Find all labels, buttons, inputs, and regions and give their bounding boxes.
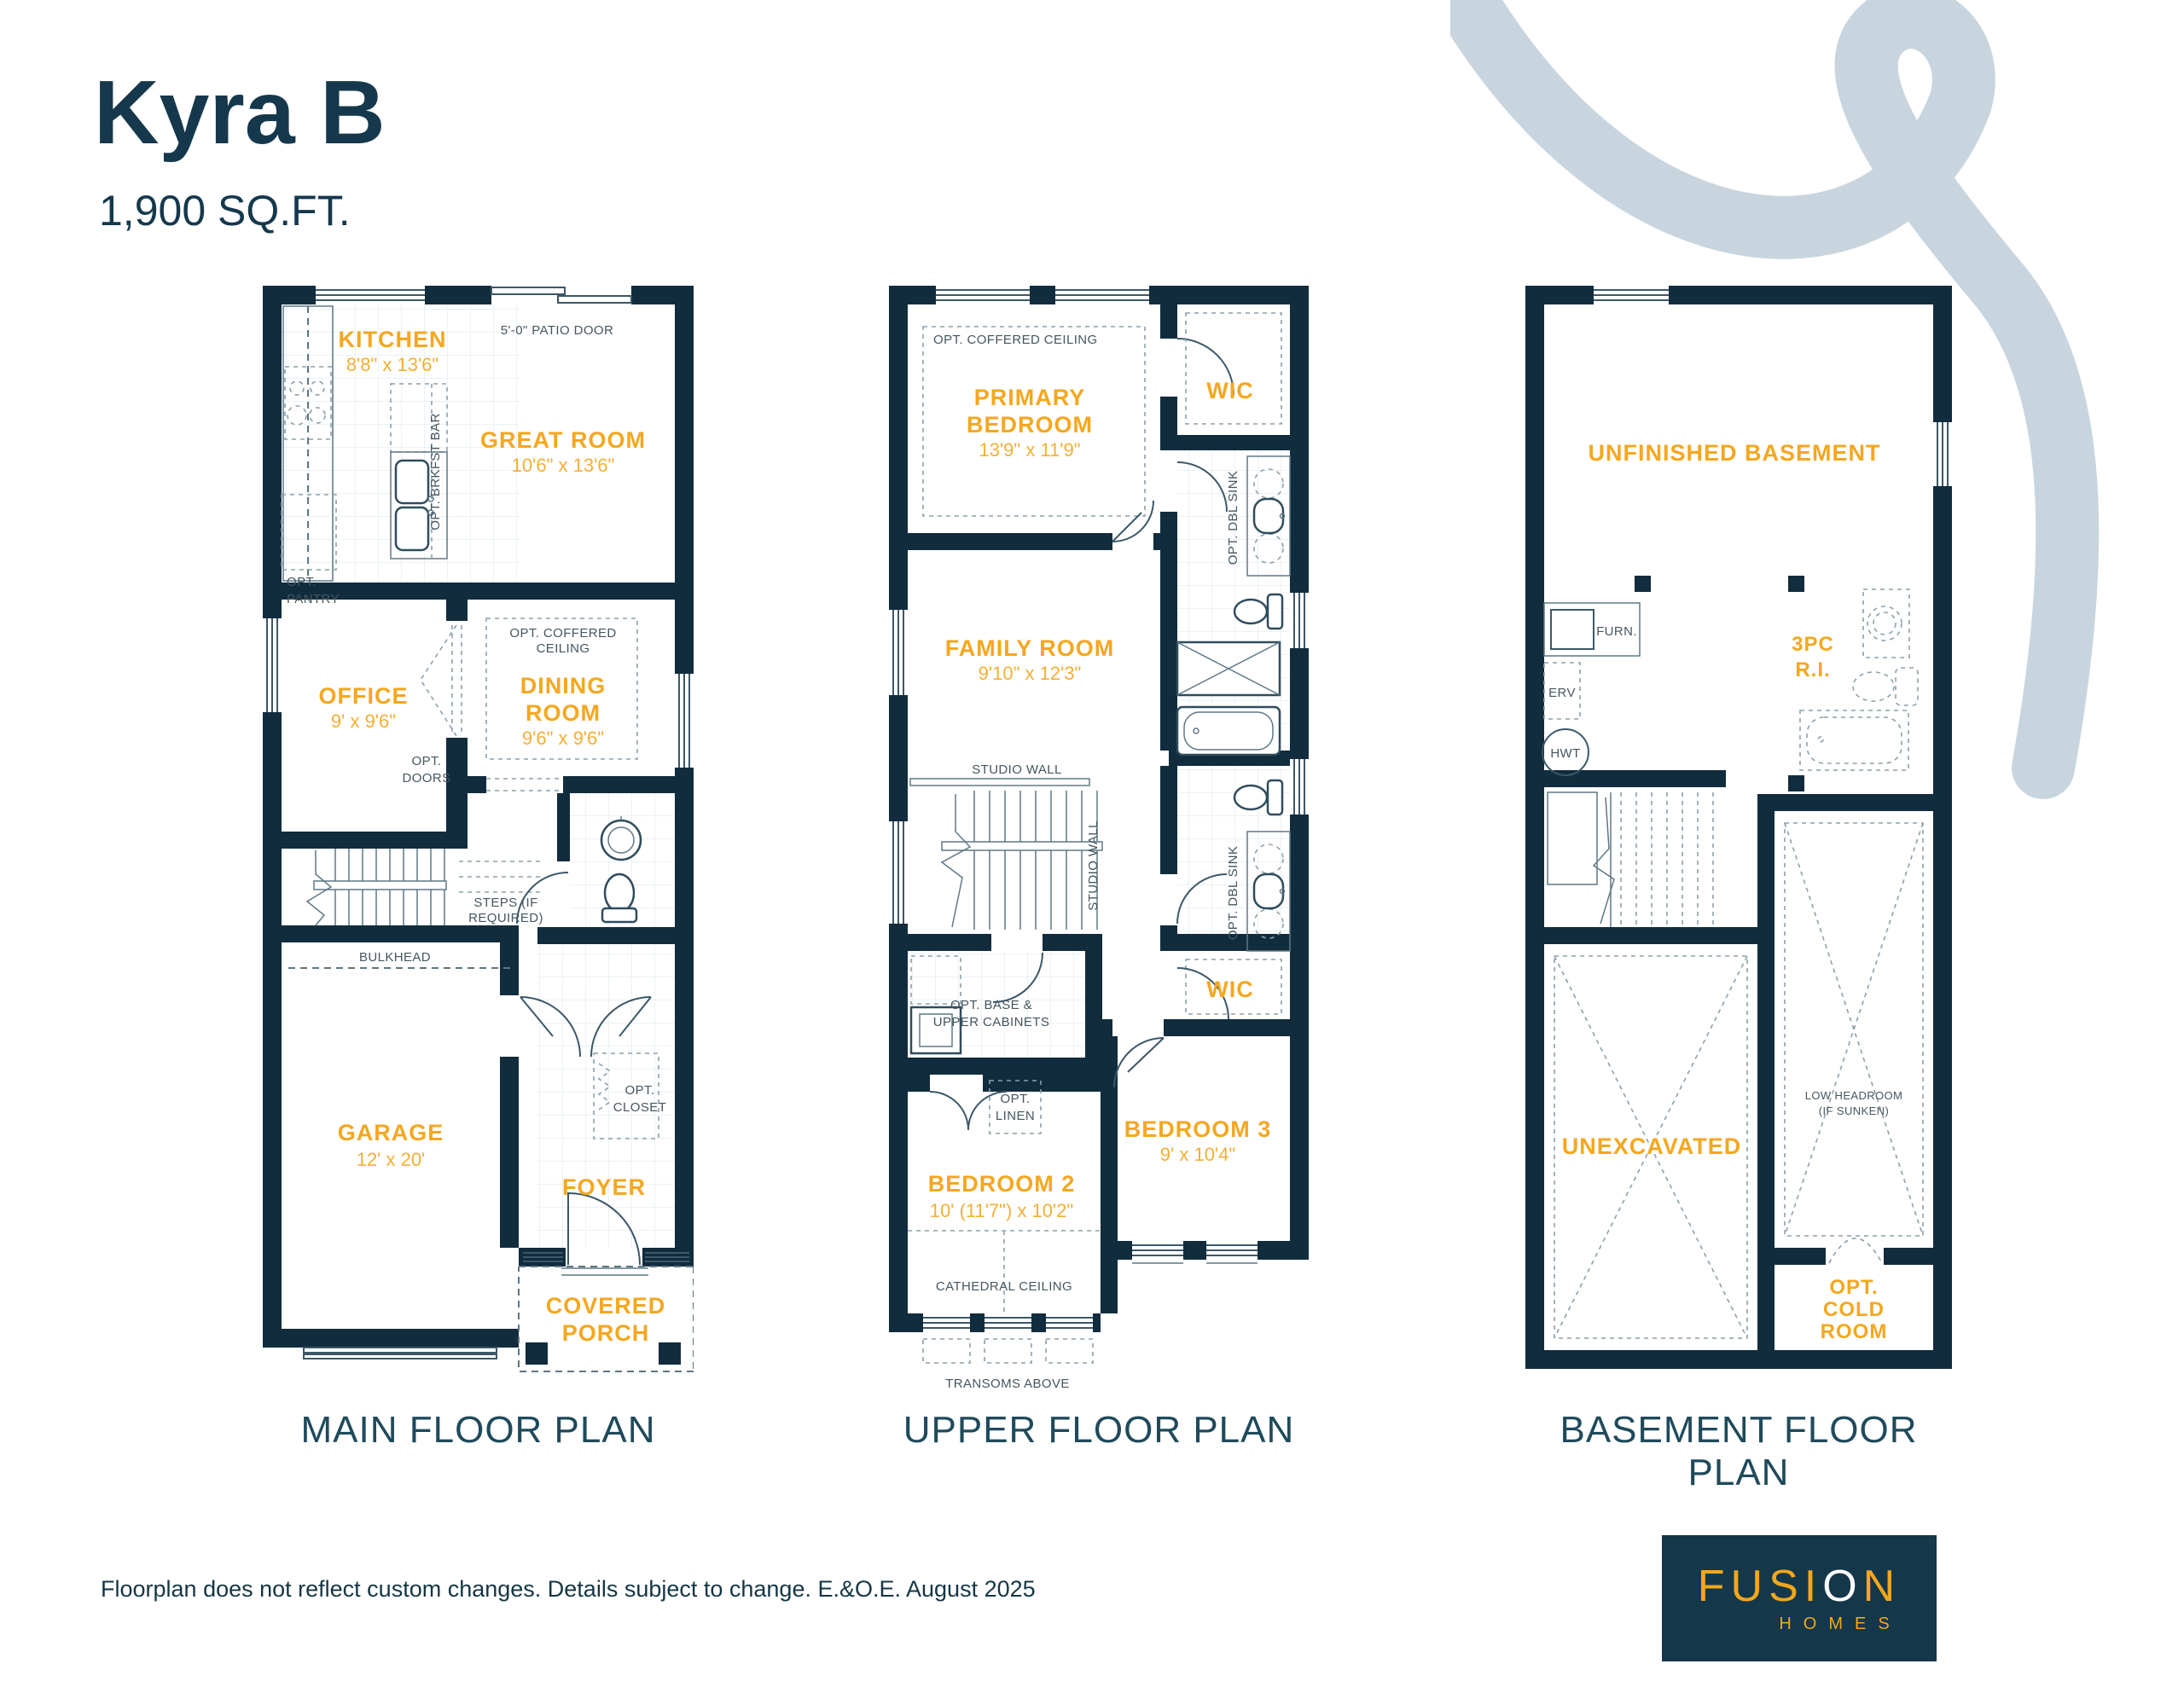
garage-dims: 12' x 20'	[357, 1149, 426, 1170]
cold-room-label-3: ROOM	[1821, 1320, 1888, 1343]
bulkhead-note: BULKHEAD	[359, 950, 431, 965]
family-room-label: FAMILY ROOM	[945, 635, 1115, 661]
dining-label-2: ROOM	[526, 700, 601, 726]
post-icon	[1788, 775, 1804, 791]
studio-wall-note-v: STUDIO WALL	[1086, 820, 1101, 911]
garage-label: GARAGE	[338, 1120, 444, 1145]
steps-note-2: REQUIRED)	[468, 911, 543, 925]
post-icon	[1788, 576, 1804, 592]
main-plan-caption: MAIN FLOOR PLAN	[263, 1409, 694, 1452]
great-room-dims: 10'6" x 13'6"	[512, 455, 615, 476]
kitchen-dims: 8'8" x 13'6"	[346, 354, 439, 375]
steps-note-1: STEPS (IF	[473, 896, 537, 910]
powder-toilet-icon	[602, 874, 636, 922]
page-sqft: 1,900 SQ.FT.	[99, 186, 351, 235]
bedroom2-label: BEDROOM 2	[928, 1171, 1076, 1197]
primary-dims: 13'9" x 11'9"	[979, 439, 1080, 461]
porch-post-icon	[657, 1341, 682, 1366]
studio-wall-note-h: STUDIO WALL	[972, 762, 1062, 777]
disclaimer-text: Floorplan does not reflect custom change…	[101, 1576, 1036, 1603]
furn-note: FURN.	[1596, 624, 1637, 639]
unfinished-basement-label: UNFINISHED BASEMENT	[1588, 440, 1880, 466]
base-cabinets-note-2: UPPER CABINETS	[933, 1015, 1049, 1029]
opt-closet-note-2: CLOSET	[613, 1100, 666, 1115]
fusion-homes-logo: FUSION HOMES	[1662, 1535, 1937, 1661]
cold-room-label-2: COLD	[1823, 1298, 1885, 1321]
primary-label-2: BEDROOM	[967, 412, 1093, 438]
bedroom3-dims: 9' x 10'4"	[1160, 1144, 1235, 1165]
great-room-label: GREAT ROOM	[480, 427, 646, 453]
low-headroom-note-1: LOW HEADROOM	[1805, 1089, 1903, 1102]
dbl-sink-note-2: OPT. DBL SINK	[1226, 846, 1240, 941]
linen-note-1: OPT.	[1001, 1092, 1031, 1106]
porch-post-icon	[524, 1341, 549, 1366]
office-dims: 9' x 9'6"	[331, 710, 396, 732]
erv-note: ERV	[1548, 686, 1576, 700]
dbl-sink-note-1: OPT. DBL SINK	[1226, 471, 1240, 565]
porch-label-1: COVERED	[546, 1293, 666, 1319]
opt-pantry-note-2: PANTRY	[287, 592, 340, 606]
bathtub-icon	[1177, 707, 1280, 755]
coffered-note-1: OPT. COFFERED	[509, 626, 616, 641]
threepc-label-2: R.I.	[1795, 658, 1830, 681]
logo-brand-text: FUSION	[1698, 1564, 1901, 1609]
kitchen-label: KITCHEN	[339, 327, 447, 352]
opt-closet-note-1: OPT.	[625, 1083, 655, 1098]
page-title: Kyra B	[94, 61, 386, 165]
post-icon	[1635, 576, 1651, 592]
opt-doors-note-1: OPT.	[412, 754, 442, 768]
office-label: OFFICE	[319, 683, 409, 709]
patio-door-note: 5'-0" PATIO DOOR	[501, 323, 613, 338]
dining-label-1: DINING	[520, 673, 607, 699]
opt-pantry-note-1: OPT.	[287, 575, 317, 589]
hwt-note: HWT	[1550, 746, 1580, 761]
base-cabinets-note-1: OPT. BASE &	[950, 998, 1032, 1012]
unexcavated-label: UNEXCAVATED	[1562, 1133, 1742, 1159]
logo-brand-o: O	[1822, 1562, 1862, 1611]
logo-sub-text: HOMES	[1779, 1615, 1901, 1632]
basement-floor-plan: UNFINISHED BASEMENT FURN. ERV HWT 3PC R.…	[1525, 286, 1952, 1394]
porch-label-2: PORCH	[562, 1320, 650, 1346]
linen-note-2: LINEN	[996, 1109, 1035, 1123]
opt-doors-note-2: DOORS	[402, 771, 450, 786]
cathedral-note: CATHEDRAL CEILING	[936, 1279, 1072, 1294]
foyer-label: FOYER	[562, 1174, 646, 1200]
main-floor-plan: KITCHEN 8'8" x 13'6" 5'-0" PATIO DOOR GR…	[263, 286, 694, 1377]
bedroom2-dims: 10' (11'7") x 10'2"	[930, 1200, 1073, 1221]
wic2-label: WIC	[1206, 977, 1253, 1002]
ensuite-sink-icon	[1254, 499, 1283, 533]
dining-dims: 9'6" x 9'6"	[522, 728, 604, 749]
logo-brand-pre: FUSI	[1698, 1562, 1822, 1611]
shower-icon	[1177, 642, 1280, 695]
bath-sink-icon	[1254, 874, 1283, 908]
cold-room-label-1: OPT.	[1829, 1276, 1878, 1299]
upper-floor-plan: OPT. COFFERED CEILING PRIMARY BEDROOM 13…	[889, 286, 1309, 1412]
brkfst-bar-note: OPT. BRKFST BAR	[428, 413, 443, 530]
primary-label-1: PRIMARY	[974, 385, 1086, 410]
bedroom3-label: BEDROOM 3	[1124, 1116, 1272, 1142]
logo-brand-post: N	[1863, 1562, 1902, 1611]
basement-plan-caption: BASEMENT FLOOR PLAN	[1525, 1409, 1952, 1494]
transoms-note: TRANSOMS ABOVE	[945, 1377, 1070, 1391]
upper-plan-caption: UPPER FLOOR PLAN	[889, 1409, 1309, 1452]
upper-coffered-note: OPT. COFFERED CEILING	[933, 333, 1098, 347]
low-headroom-note-2: (IF SUNKEN)	[1819, 1104, 1889, 1117]
threepc-label-1: 3PC	[1792, 633, 1834, 656]
wic1-label: WIC	[1206, 378, 1253, 403]
coffered-note-2: CEILING	[537, 641, 590, 656]
family-room-dims: 9'10" x 12'3"	[979, 663, 1082, 684]
